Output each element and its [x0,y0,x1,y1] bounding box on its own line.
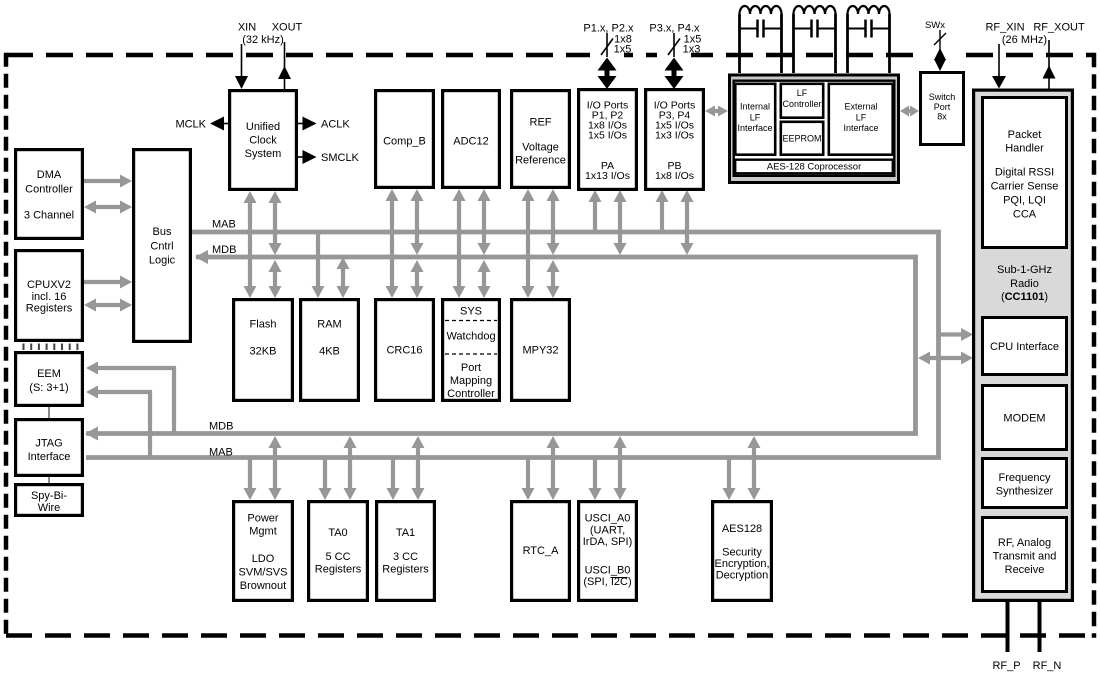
svg-text:Unified: Unified [246,121,280,133]
svg-text:AES128: AES128 [722,523,762,535]
svg-text:TA1: TA1 [396,527,415,539]
svg-text:External: External [844,102,877,112]
svg-text:Controller: Controller [782,99,821,109]
svg-text:Watchdog: Watchdog [446,331,495,343]
svg-text:MPY32: MPY32 [522,345,558,357]
svg-text:EEM: EEM [37,368,61,380]
svg-text:Registers: Registers [382,564,429,576]
svg-text:RF_XOUT: RF_XOUT [1033,22,1085,34]
svg-text:(UART,: (UART, [590,525,625,537]
svg-text:Packet: Packet [1008,129,1042,141]
svg-text:CRC16: CRC16 [386,345,422,357]
svg-text:SWx: SWx [925,20,945,31]
svg-text:ADC12: ADC12 [453,136,488,148]
svg-text:Clock: Clock [249,135,277,147]
svg-text:RF_N: RF_N [1033,660,1062,672]
svg-text:REF: REF [530,117,552,129]
svg-text:Frequency: Frequency [999,472,1051,484]
svg-text:SYS: SYS [460,306,482,318]
svg-text:Decryption: Decryption [716,570,769,582]
svg-text:RAM: RAM [317,319,341,331]
svg-text:1x5: 1x5 [614,43,632,55]
svg-text:Wire: Wire [38,502,61,514]
svg-text:MDB: MDB [209,421,233,433]
svg-text:CPU Interface: CPU Interface [990,341,1059,353]
svg-text:Comp_B: Comp_B [383,136,426,148]
svg-text:Power: Power [247,513,279,525]
svg-text:Flash: Flash [250,319,277,331]
svg-text:DMA: DMA [37,169,62,181]
svg-text:System: System [245,148,282,160]
svg-text:MCLK: MCLK [175,119,206,131]
svg-text:Logic: Logic [149,255,176,267]
svg-text:Mgmt: Mgmt [249,526,277,538]
svg-text:(S: 3+1): (S: 3+1) [29,382,68,394]
svg-text:Switch: Switch [929,92,956,102]
svg-text:RF, Analog: RF, Analog [998,537,1051,549]
svg-text:MAB: MAB [209,447,233,459]
svg-text:JTAG: JTAG [35,438,62,450]
svg-text:Voltage: Voltage [522,142,559,154]
svg-text:LDO: LDO [252,553,275,565]
svg-text:Encryption,: Encryption, [714,558,769,570]
svg-text:CPUXV2: CPUXV2 [27,279,71,291]
svg-text:MDB: MDB [212,244,236,256]
svg-text:Carrier Sense: Carrier Sense [991,181,1059,193]
svg-text:Interface: Interface [28,451,71,463]
svg-text:Cntrl: Cntrl [150,241,173,253]
svg-text:Port: Port [934,102,951,112]
svg-text:EEPROM: EEPROM [782,134,821,144]
svg-text:Controller: Controller [25,184,73,196]
svg-text:RTC_A: RTC_A [523,545,560,557]
svg-text:Interface: Interface [737,123,772,133]
svg-text:IrDA, SPI): IrDA, SPI) [583,536,633,548]
svg-text:Security: Security [722,547,762,559]
svg-text:MAB: MAB [212,219,236,231]
svg-text:1x13 I/Os: 1x13 I/Os [585,170,630,182]
svg-text:AES-128 Coprocessor: AES-128 Coprocessor [767,162,862,173]
svg-text:8x: 8x [937,112,947,122]
svg-text:Brownout: Brownout [240,580,286,592]
svg-text:Handler: Handler [1005,143,1044,155]
svg-text:USCI_B0: USCI_B0 [585,565,631,577]
svg-text:RF_XIN: RF_XIN [985,22,1024,34]
svg-text:1x3 I/Os: 1x3 I/Os [655,130,694,142]
svg-text:1x5 I/Os: 1x5 I/Os [588,130,627,142]
svg-text:TA0: TA0 [328,527,347,539]
svg-text:Port: Port [461,362,481,374]
svg-text:SVM/SVS: SVM/SVS [239,567,288,579]
svg-text:1x8 I/Os: 1x8 I/Os [655,170,694,182]
svg-text:USCI_A0: USCI_A0 [585,513,631,525]
svg-text:(32 kHz): (32 kHz) [242,34,284,46]
svg-text:Transmit and: Transmit and [993,551,1057,563]
svg-text:Receive: Receive [1005,564,1045,576]
svg-text:32KB: 32KB [250,346,277,358]
svg-text:LF: LF [750,113,761,123]
svg-text:MODEM: MODEM [1003,413,1045,425]
svg-text:5 CC: 5 CC [325,551,350,563]
svg-text:Radio: Radio [1010,278,1039,290]
svg-text:PQI, LQI: PQI, LQI [1003,195,1046,207]
svg-text:Controller: Controller [447,388,495,400]
svg-text:RF_P: RF_P [992,660,1020,672]
svg-text:CCA: CCA [1013,209,1037,221]
svg-text:Spy-Bi-: Spy-Bi- [31,490,67,502]
svg-text:Reference: Reference [515,155,566,167]
svg-text:Interface: Interface [843,123,878,133]
svg-text:Digital RSSI: Digital RSSI [995,167,1054,179]
svg-text:Internal: Internal [740,102,770,112]
svg-text:SMCLK: SMCLK [321,152,360,164]
svg-text:4KB: 4KB [319,346,340,358]
svg-text:Mapping: Mapping [450,375,492,387]
svg-text:XOUT: XOUT [272,22,303,34]
svg-text:(26 MHz): (26 MHz) [1002,34,1047,46]
svg-text:3 CC: 3 CC [393,551,418,563]
svg-text:XIN: XIN [238,22,256,34]
svg-text:incl. 16: incl. 16 [32,291,67,303]
svg-text:ACLK: ACLK [321,119,350,131]
svg-text:Bus: Bus [153,226,172,238]
svg-text:Synthesizer: Synthesizer [996,486,1054,498]
svg-text:Sub-1-GHz: Sub-1-GHz [997,264,1052,276]
svg-text:Registers: Registers [315,564,362,576]
svg-text:(CC1101): (CC1101) [1001,291,1048,303]
svg-text:LF: LF [856,113,867,123]
svg-text:LF: LF [797,88,808,98]
svg-text:3 Channel: 3 Channel [24,210,74,222]
svg-text:Registers: Registers [26,303,73,315]
svg-text:1x3: 1x3 [683,43,701,55]
